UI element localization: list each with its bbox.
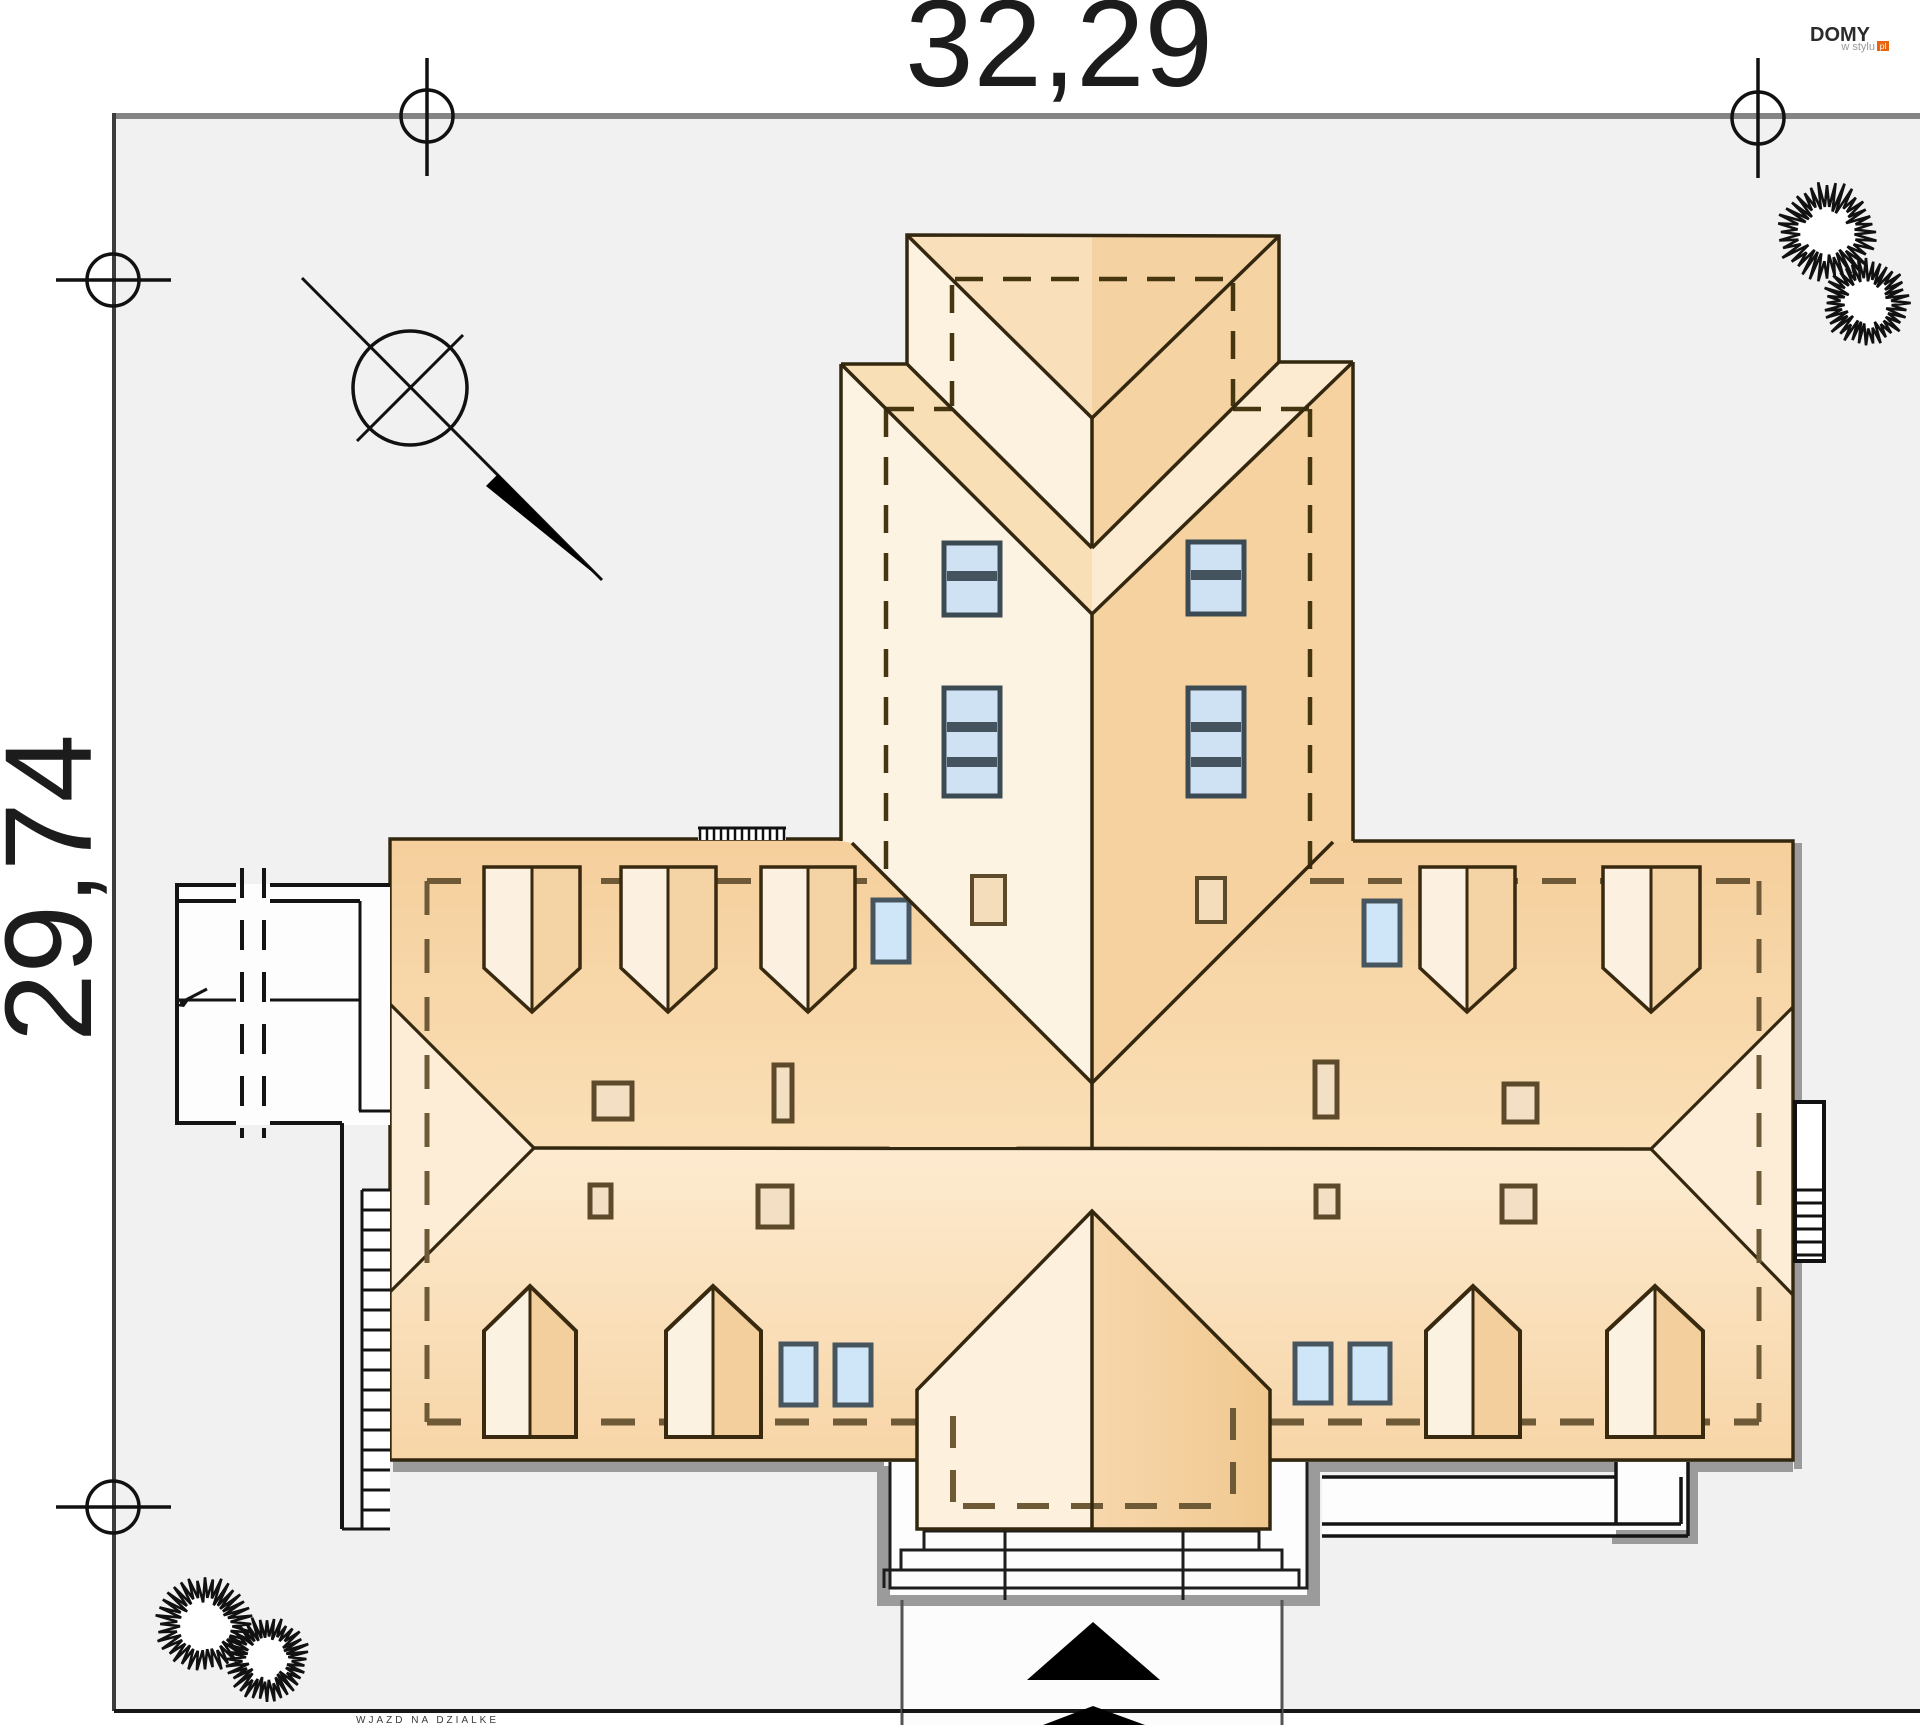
svg-text:WJAZD NA DZIALKE: WJAZD NA DZIALKE <box>356 1715 499 1725</box>
svg-text:w stylu: w stylu <box>1840 41 1875 53</box>
svg-text:32,29: 32,29 <box>905 0 1213 113</box>
svg-text:pl: pl <box>1880 41 1887 51</box>
svg-text:29,74: 29,74 <box>0 734 118 1042</box>
